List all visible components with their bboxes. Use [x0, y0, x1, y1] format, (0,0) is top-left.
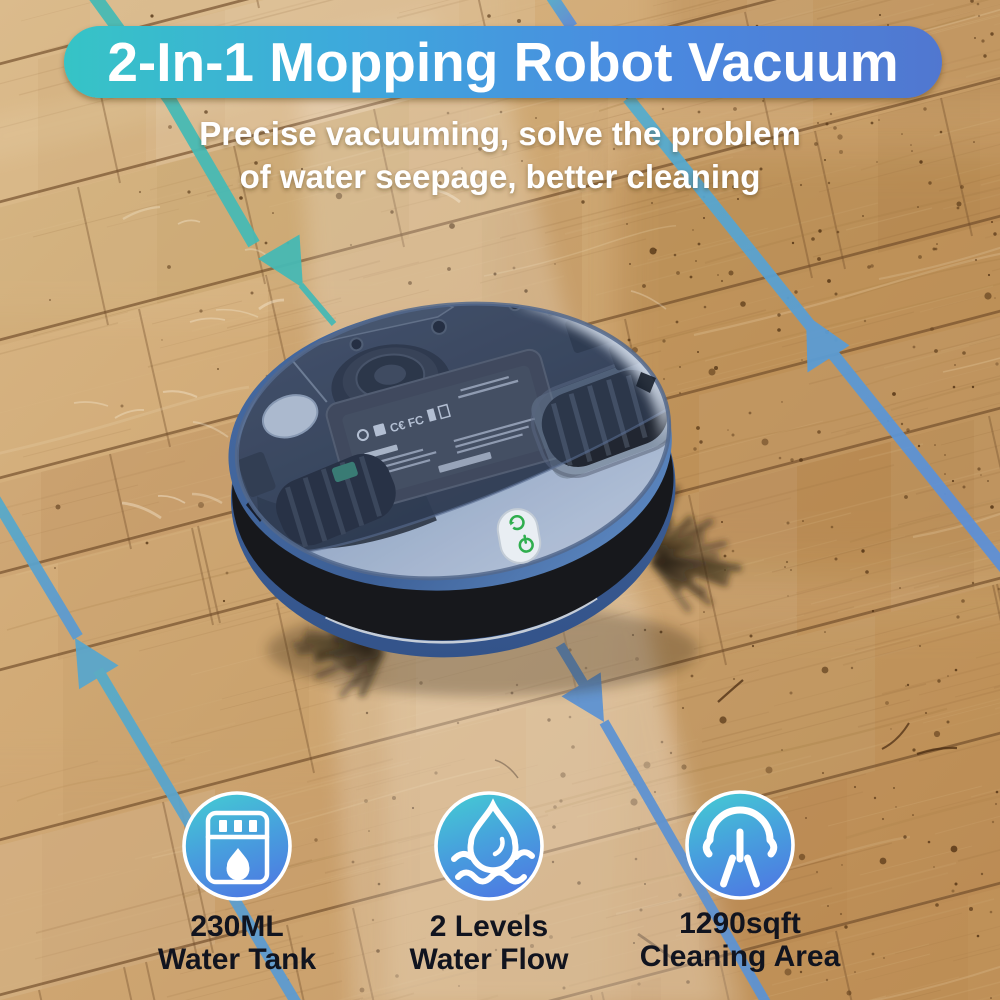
svg-text:of water seepage, better clean: of water seepage, better cleaning — [240, 158, 761, 195]
svg-text:2 Levels: 2 Levels — [430, 910, 548, 943]
svg-text:1290sqft: 1290sqft — [679, 907, 801, 940]
svg-text:Water Tank: Water Tank — [158, 943, 317, 976]
svg-text:Precise vacuuming, solve the p: Precise vacuuming, solve the problem — [199, 115, 801, 152]
svg-text:Water Flow: Water Flow — [410, 943, 570, 976]
svg-text:230ML: 230ML — [190, 910, 283, 943]
svg-text:Cleaning Area: Cleaning Area — [640, 940, 841, 973]
svg-text:2-In-1 Mopping Robot Vacuum: 2-In-1 Mopping Robot Vacuum — [107, 31, 898, 93]
